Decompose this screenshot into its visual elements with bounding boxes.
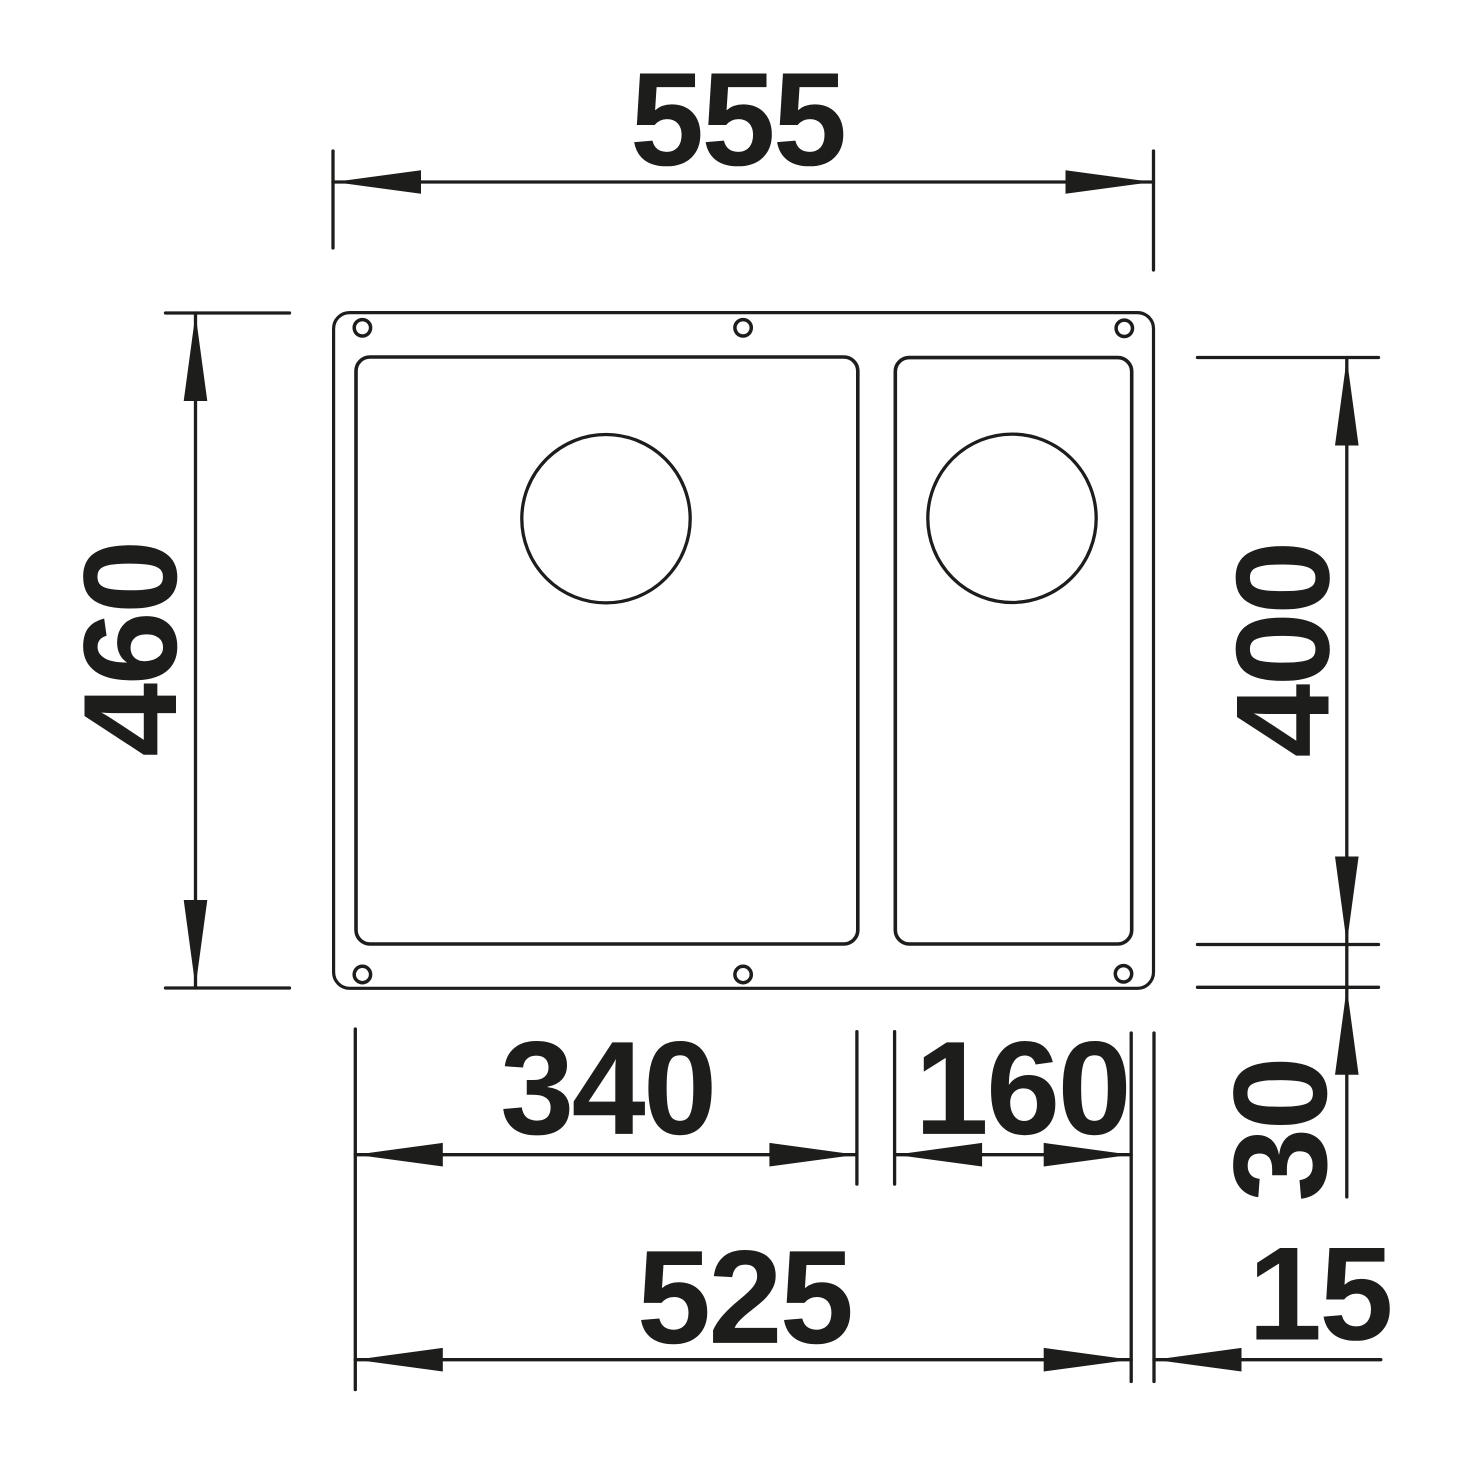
svg-text:400: 400 bbox=[1210, 543, 1358, 757]
svg-text:160: 160 bbox=[915, 1015, 1129, 1163]
svg-text:340: 340 bbox=[500, 1015, 714, 1163]
svg-text:555: 555 bbox=[630, 46, 844, 194]
svg-text:525: 525 bbox=[637, 1224, 851, 1372]
svg-text:30: 30 bbox=[1207, 1059, 1355, 1202]
svg-text:15: 15 bbox=[1248, 1221, 1391, 1369]
svg-text:460: 460 bbox=[57, 542, 205, 756]
